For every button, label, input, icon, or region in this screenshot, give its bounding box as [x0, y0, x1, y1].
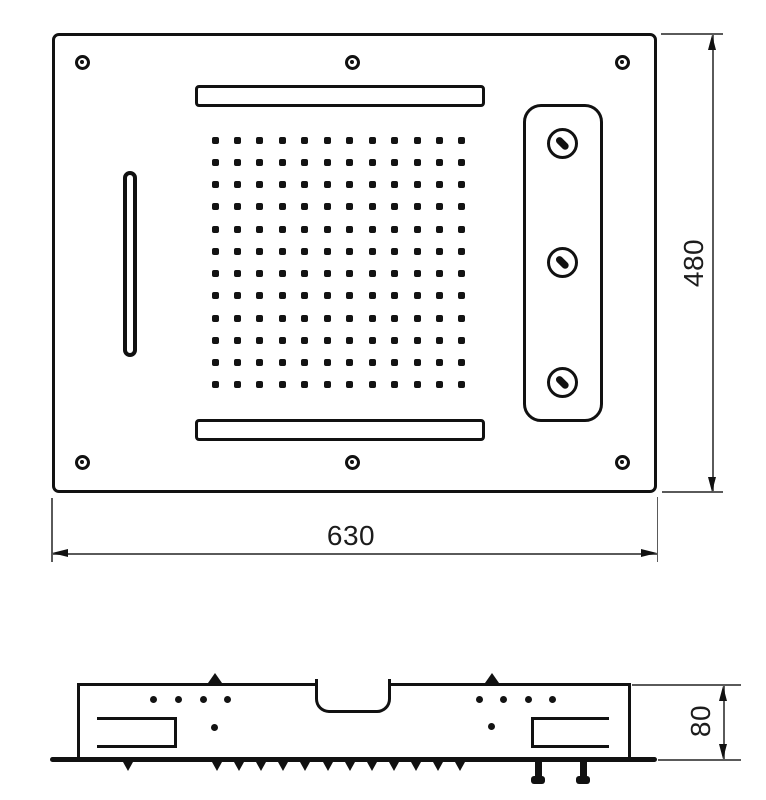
nozzle-dot — [346, 270, 353, 277]
screw-hole — [75, 455, 90, 470]
nozzle-dot — [301, 248, 308, 255]
nozzle-dot — [346, 137, 353, 144]
nozzle-dot — [324, 203, 331, 210]
nozzle-dot — [414, 337, 421, 344]
height-dimension-line — [712, 35, 714, 492]
nozzle-dot — [234, 137, 241, 144]
nozzle-dot — [414, 137, 421, 144]
nozzle-dot — [369, 137, 376, 144]
nozzle-tooth-icon — [300, 762, 310, 771]
nozzle-dot — [414, 159, 421, 166]
nozzle-dot — [346, 337, 353, 344]
nozzle-dot — [256, 248, 263, 255]
height-arrow-up-icon — [708, 35, 716, 50]
nozzle-dot — [279, 292, 286, 299]
nozzle-dot — [436, 381, 443, 388]
nozzle-dot — [212, 381, 219, 388]
nozzle-dot — [256, 337, 263, 344]
nozzle-tooth-icon — [389, 762, 399, 771]
nozzle-dot — [324, 181, 331, 188]
nozzle-dot — [256, 203, 263, 210]
width-arrow-right-icon — [641, 549, 657, 557]
nozzle-tooth-icon — [367, 762, 377, 771]
nozzle-dot — [212, 137, 219, 144]
nozzle-dot — [369, 181, 376, 188]
nozzle-dot — [391, 292, 398, 299]
nozzle-dot — [279, 337, 286, 344]
side-hole-dot — [175, 696, 182, 703]
nozzle-dot — [212, 181, 219, 188]
nozzle-tooth-icon — [455, 762, 465, 771]
nozzle-tooth-icon — [278, 762, 288, 771]
nozzle-dot — [458, 181, 465, 188]
nozzle-dot — [324, 292, 331, 299]
nozzle-dot — [279, 359, 286, 366]
nozzle-dot — [458, 381, 465, 388]
nozzle-dot — [346, 159, 353, 166]
nozzle-dot — [279, 159, 286, 166]
nozzle-dot — [279, 270, 286, 277]
nozzle-dot — [234, 381, 241, 388]
nozzle-dot — [324, 137, 331, 144]
side-hole-dot — [549, 696, 556, 703]
nozzle-dot — [234, 292, 241, 299]
nozzle-dot — [458, 359, 465, 366]
nozzle-dot — [369, 337, 376, 344]
nozzle-dot — [414, 315, 421, 322]
nozzle-dot — [301, 359, 308, 366]
nozzle-tooth-icon — [234, 762, 244, 771]
nozzle-dot — [256, 226, 263, 233]
side-hole-dot — [224, 696, 231, 703]
side-hole-dot — [488, 723, 495, 730]
nozzle-dot — [414, 381, 421, 388]
side-hole-dot — [500, 696, 507, 703]
nozzle-dot — [256, 292, 263, 299]
nozzle-dot — [301, 159, 308, 166]
nozzle-dot — [369, 292, 376, 299]
nozzle-dot — [436, 137, 443, 144]
bottom-spray-slot — [195, 419, 485, 441]
side-hole-dot — [200, 696, 207, 703]
nozzle-dot — [324, 159, 331, 166]
nozzle-dot — [234, 248, 241, 255]
mounting-peg-icon — [485, 673, 499, 683]
top-spray-slot — [195, 85, 485, 107]
nozzle-dot — [414, 248, 421, 255]
nozzle-dot — [234, 315, 241, 322]
technical-drawing-canvas: 480 630 80 — [0, 0, 766, 800]
nozzle-dot — [369, 270, 376, 277]
side-view-left-slot — [97, 717, 177, 748]
nozzle-dot — [458, 159, 465, 166]
mounting-peg-icon — [208, 673, 222, 683]
nozzle-dot — [301, 181, 308, 188]
nozzle-dot — [301, 137, 308, 144]
side-hole-dot — [150, 696, 157, 703]
nozzle-dot — [436, 292, 443, 299]
nozzle-dot — [346, 203, 353, 210]
nozzle-dot — [234, 337, 241, 344]
nozzle-dot — [436, 248, 443, 255]
nozzle-dot — [301, 203, 308, 210]
nozzle-dot — [436, 315, 443, 322]
nozzle-dot — [436, 337, 443, 344]
nozzle-dot — [212, 226, 219, 233]
nozzle-dot — [324, 337, 331, 344]
side-view-recess-notch — [315, 679, 391, 713]
screw-hole — [615, 55, 630, 70]
screw-hole — [345, 455, 360, 470]
nozzle-dot — [212, 337, 219, 344]
nozzle-dot — [234, 270, 241, 277]
nozzle-dot — [369, 226, 376, 233]
waterfall-tooth-icon — [123, 762, 133, 771]
nozzle-dot — [436, 359, 443, 366]
nozzle-dot — [369, 203, 376, 210]
nozzle-dot — [324, 381, 331, 388]
nozzle-dot — [256, 381, 263, 388]
nozzle-dot — [369, 248, 376, 255]
nozzle-dot — [234, 181, 241, 188]
nozzle-dot — [346, 359, 353, 366]
nozzle-dot — [458, 203, 465, 210]
nozzle-dot — [414, 226, 421, 233]
nozzle-dot — [279, 315, 286, 322]
nozzle-dot — [212, 159, 219, 166]
nozzle-dot — [391, 359, 398, 366]
nozzle-dot — [458, 337, 465, 344]
nozzle-dot — [346, 181, 353, 188]
nozzle-dot — [301, 381, 308, 388]
nozzle-dot — [414, 359, 421, 366]
nozzle-dot — [234, 203, 241, 210]
width-dimension-line — [52, 553, 657, 555]
nozzle-dot — [369, 159, 376, 166]
nozzle-dot — [346, 248, 353, 255]
nozzle-dot — [346, 292, 353, 299]
body-jet — [547, 247, 578, 278]
nozzle-dot — [391, 315, 398, 322]
nozzle-dot — [324, 270, 331, 277]
nozzle-dot — [369, 381, 376, 388]
nozzle-dot — [436, 159, 443, 166]
body-jet — [547, 128, 578, 159]
side-hole-dot — [211, 724, 218, 731]
nozzle-dot — [234, 359, 241, 366]
nozzle-dot — [256, 159, 263, 166]
nozzle-dot — [391, 381, 398, 388]
nozzle-dot — [436, 226, 443, 233]
nozzle-dot — [369, 315, 376, 322]
nozzle-dot — [458, 137, 465, 144]
screw-hole — [345, 55, 360, 70]
nozzle-dot — [458, 315, 465, 322]
nozzle-dot — [279, 226, 286, 233]
waterfall-slot — [123, 171, 137, 357]
width-dimension-label: 630 — [311, 521, 391, 551]
nozzle-dot — [391, 137, 398, 144]
nozzle-dot — [234, 226, 241, 233]
nozzle-tooth-icon — [411, 762, 421, 771]
nozzle-dot — [414, 292, 421, 299]
nozzle-dot — [301, 292, 308, 299]
nozzle-dot — [414, 203, 421, 210]
nozzle-tooth-icon — [345, 762, 355, 771]
nozzle-dot — [324, 226, 331, 233]
nozzle-dot — [414, 181, 421, 188]
nozzle-dot — [301, 337, 308, 344]
nozzle-dot — [212, 359, 219, 366]
inlet-foot — [576, 776, 590, 784]
nozzle-dot — [324, 315, 331, 322]
nozzle-dot — [458, 270, 465, 277]
nozzle-dot — [458, 292, 465, 299]
nozzle-tooth-icon — [323, 762, 333, 771]
nozzle-dot — [279, 137, 286, 144]
height-dimension-label: 480 — [679, 233, 709, 293]
nozzle-dot — [279, 203, 286, 210]
side-view-right-slot — [531, 717, 609, 748]
nozzle-dot — [391, 248, 398, 255]
nozzle-dot — [324, 359, 331, 366]
nozzle-dot — [391, 337, 398, 344]
nozzle-dot — [324, 248, 331, 255]
screw-hole — [615, 455, 630, 470]
nozzle-dot — [346, 226, 353, 233]
body-jet — [547, 367, 578, 398]
nozzle-dot — [458, 226, 465, 233]
nozzle-dot — [391, 181, 398, 188]
nozzle-dot — [301, 226, 308, 233]
nozzle-tooth-icon — [212, 762, 222, 771]
height-arrow-down-icon — [708, 477, 716, 492]
screw-hole — [75, 55, 90, 70]
nozzle-dot — [369, 359, 376, 366]
depth-arrow-down-icon — [719, 744, 727, 759]
nozzle-dot — [212, 270, 219, 277]
side-hole-dot — [476, 696, 483, 703]
nozzle-dot — [256, 137, 263, 144]
nozzle-dot — [279, 248, 286, 255]
nozzle-tooth-icon — [256, 762, 266, 771]
depth-dimension-label: 80 — [686, 691, 716, 751]
width-arrow-left-icon — [52, 549, 68, 557]
nozzle-dot — [234, 159, 241, 166]
nozzle-dot — [391, 203, 398, 210]
nozzle-dot — [212, 315, 219, 322]
side-hole-dot — [525, 696, 532, 703]
nozzle-dot — [279, 381, 286, 388]
nozzle-dot — [414, 270, 421, 277]
nozzle-dot — [301, 270, 308, 277]
nozzle-dot — [256, 315, 263, 322]
nozzle-dot — [301, 315, 308, 322]
nozzle-dot — [436, 270, 443, 277]
nozzle-dot — [391, 159, 398, 166]
nozzle-dot — [256, 359, 263, 366]
depth-extension-line-bottom — [658, 759, 741, 761]
nozzle-dot — [391, 270, 398, 277]
depth-arrow-up-icon — [719, 686, 727, 701]
nozzle-dot — [212, 203, 219, 210]
nozzle-dot — [256, 270, 263, 277]
nozzle-dot — [458, 248, 465, 255]
nozzle-dot — [346, 381, 353, 388]
nozzle-dot — [346, 315, 353, 322]
nozzle-dot — [436, 181, 443, 188]
nozzle-dot — [256, 181, 263, 188]
nozzle-tooth-icon — [433, 762, 443, 771]
nozzle-dot — [436, 203, 443, 210]
nozzle-dot — [279, 181, 286, 188]
nozzle-dot — [391, 226, 398, 233]
inlet-foot — [531, 776, 545, 784]
nozzle-dot — [212, 292, 219, 299]
nozzle-dot — [212, 248, 219, 255]
